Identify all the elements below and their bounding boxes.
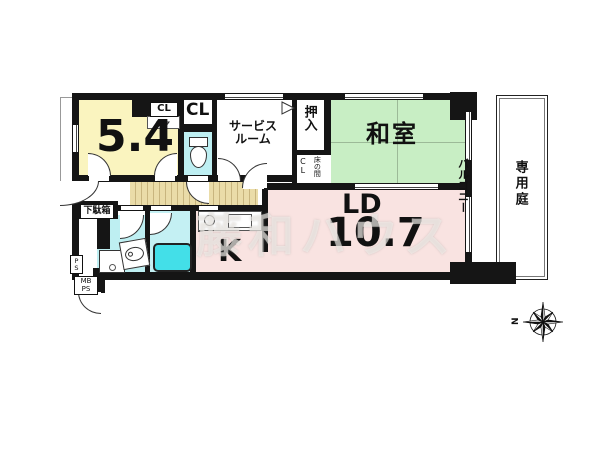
door-gap — [155, 176, 175, 181]
floor-plan: 5.4 CL CL サービス ルーム 押入 CL 床の間 和室 下駄箱 K LD… — [0, 0, 600, 450]
oshiire-label: 押入 — [302, 105, 316, 131]
wall — [262, 183, 297, 190]
door-pennant-icon — [281, 101, 296, 116]
drain-icon — [109, 264, 116, 271]
door-gap — [121, 206, 143, 210]
closet-top-label: CL — [150, 102, 178, 117]
closet-washitsu-label: CL — [298, 157, 306, 175]
window-washitsu-top — [345, 94, 423, 99]
tokonoma-label: 床の間 — [313, 156, 320, 177]
service-room-label: サービス ルーム — [222, 120, 284, 145]
window-bedroom — [73, 125, 78, 152]
door-arc-entrance — [78, 292, 101, 314]
wall — [212, 100, 217, 181]
watermark-text: 藤和ハウス — [196, 200, 456, 266]
wall — [297, 150, 324, 155]
compass-rose-icon: N — [511, 294, 575, 350]
door-arc-ld — [242, 163, 267, 188]
door-gap — [188, 176, 208, 181]
wall — [178, 100, 184, 181]
pipe-space-label: P S — [70, 255, 83, 274]
meter-box-label: MB PS — [74, 276, 98, 295]
closet-mid-label: CL — [186, 102, 209, 120]
wall — [324, 100, 331, 155]
balcony-label: バルコニー — [457, 158, 469, 213]
wall-balcony-top — [450, 92, 477, 120]
bedroom-size-label: 5.4 — [96, 114, 174, 160]
compass-north-label: N — [511, 317, 521, 325]
vanity-basin-icon — [119, 238, 150, 270]
getabako-label: 下駄箱 — [80, 204, 114, 219]
wall-balcony-bottom — [450, 262, 516, 284]
wall — [97, 215, 110, 249]
window-service-room — [225, 94, 283, 99]
wall — [184, 124, 212, 132]
private-garden-label: 専用庭 — [513, 160, 527, 208]
door-arc-service-room — [218, 158, 241, 181]
washitsu-label: 和室 — [366, 122, 418, 147]
bathtub-icon — [153, 243, 192, 272]
door-gap — [151, 206, 171, 210]
window-washitsu-balcony — [466, 112, 471, 160]
wall-bottom — [96, 272, 472, 280]
